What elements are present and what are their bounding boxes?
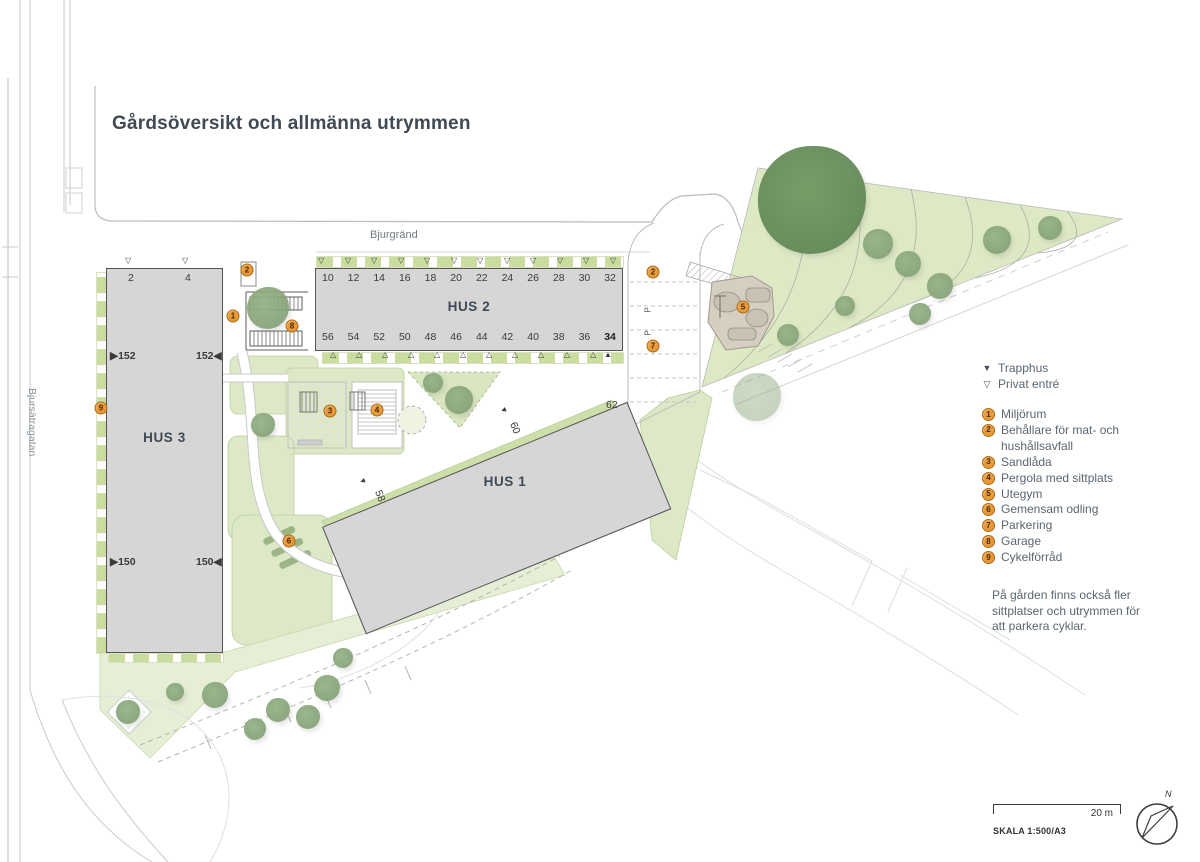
entrance-number: 34 [604,331,616,343]
entrance-number: 22 [476,272,488,284]
entrance-number: 42 [502,331,514,343]
hus2-entrance-numbers-south: 565452504846444240383634 [322,331,616,343]
hedge-strip-hus2-south [322,352,624,364]
site-plan-canvas: HUS 3 HUS 2 HUS 1 1012141618202224262830… [0,0,1200,862]
building-hus3 [106,268,223,653]
entrance-number: 20 [450,272,462,284]
legend-item-label: Sandlåda [1001,455,1052,471]
entrance-number: 32 [604,272,616,284]
entrance-number: 52 [373,331,385,343]
page-title: Gårdsöversikt och allmänna utrymmen [112,113,471,135]
hedge-strip-hus3-south [108,653,224,663]
legend-entry: ▼ Trapphus [982,360,1154,376]
entrance-number: 16 [399,272,411,284]
building-label-hus3: HUS 3 [106,430,223,445]
building-label-hus1: HUS 1 [455,474,555,489]
legend-entry: ▽ Privat entré [982,376,1154,392]
street-label-bjursatragatan: Bjursätragatan [26,388,38,456]
building-label-hus2: HUS 2 [315,299,623,314]
street-label-bjurgrand: Bjurgränd [370,229,418,241]
legend-item: 9 Cykelförråd [982,550,1154,566]
legend: ▼ Trapphus ▽ Privat entré 1 Miljörum 2 [982,360,1154,635]
legend-item: 2 Behållare för mat- och hushållsavfall [982,423,1154,455]
legend-number-marker: 3 [982,456,995,469]
legend-entry-label: Trapphus [998,360,1048,376]
legend-item: 4 Pergola med sittplats [982,471,1154,487]
entrance-number: 24 [502,272,514,284]
entrance-number: 46 [450,331,462,343]
legend-item: 6 Gemensam odling [982,502,1154,518]
legend-number-marker: 1 [982,408,995,421]
legend-items: 1 Miljörum 2 Behållare för mat- och hush… [982,407,1154,566]
entrance-number: 44 [476,331,488,343]
north-arrow-icon [1134,798,1186,850]
entrance-number: 12 [348,272,360,284]
hus2-entrance-numbers-north: 101214161820222426283032 [322,272,616,284]
north-label: N [1165,789,1172,799]
legend-number-marker: 5 [982,488,995,501]
legend-number-marker: 8 [982,535,995,548]
hedge-strip-hus2-north [316,256,624,268]
legend-number-marker: 2 [982,424,995,437]
legend-item-label: Parkering [1001,518,1052,534]
entrance-triangle-icon: ▽ [982,376,992,392]
legend-item-label: Pergola med sittplats [1001,471,1113,487]
legend-item-label: Garage [1001,534,1041,550]
legend-entrance-types: ▼ Trapphus ▽ Privat entré [982,360,1154,392]
legend-item-label: Miljörum [1001,407,1046,423]
legend-item: 1 Miljörum [982,407,1154,423]
entrance-number: 48 [425,331,437,343]
legend-item-label: Gemensam odling [1001,502,1098,518]
legend-entry-label: Privat entré [998,376,1059,392]
entrance-number: 54 [348,331,360,343]
legend-number-marker: 7 [982,519,995,532]
legend-item: 3 Sandlåda [982,455,1154,471]
entrance-number: 18 [425,272,437,284]
legend-number-marker: 6 [982,503,995,516]
entrance-number: 36 [579,331,591,343]
legend-number-marker: 4 [982,472,995,485]
legend-item: 7 Parkering [982,518,1154,534]
scale-text: SKALA 1:500/A3 [993,826,1066,836]
legend-item: 8 Garage [982,534,1154,550]
entrance-number: 38 [553,331,565,343]
legend-item-label: Behållare för mat- och hushållsavfall [1001,423,1147,455]
entrance-number: 10 [322,272,334,284]
entrance-triangle-icon: ▼ [982,360,992,376]
entrance-number: 26 [527,272,539,284]
entrance-number: 50 [399,331,411,343]
entrance-number: 56 [322,331,334,343]
legend-item-label: Cykelförråd [1001,550,1062,566]
entrance-number: 30 [579,272,591,284]
scale-bar: 20 m [993,804,1121,805]
entrance-number: 40 [527,331,539,343]
entrance-number: 28 [553,272,565,284]
legend-item: 5 Utegym [982,487,1154,503]
legend-number-marker: 9 [982,551,995,564]
legend-note: På gården finns också fler sittplatser o… [992,588,1152,635]
scale-distance-label: 20 m [1091,808,1113,819]
entrance-number: 14 [373,272,385,284]
legend-item-label: Utegym [1001,487,1042,503]
